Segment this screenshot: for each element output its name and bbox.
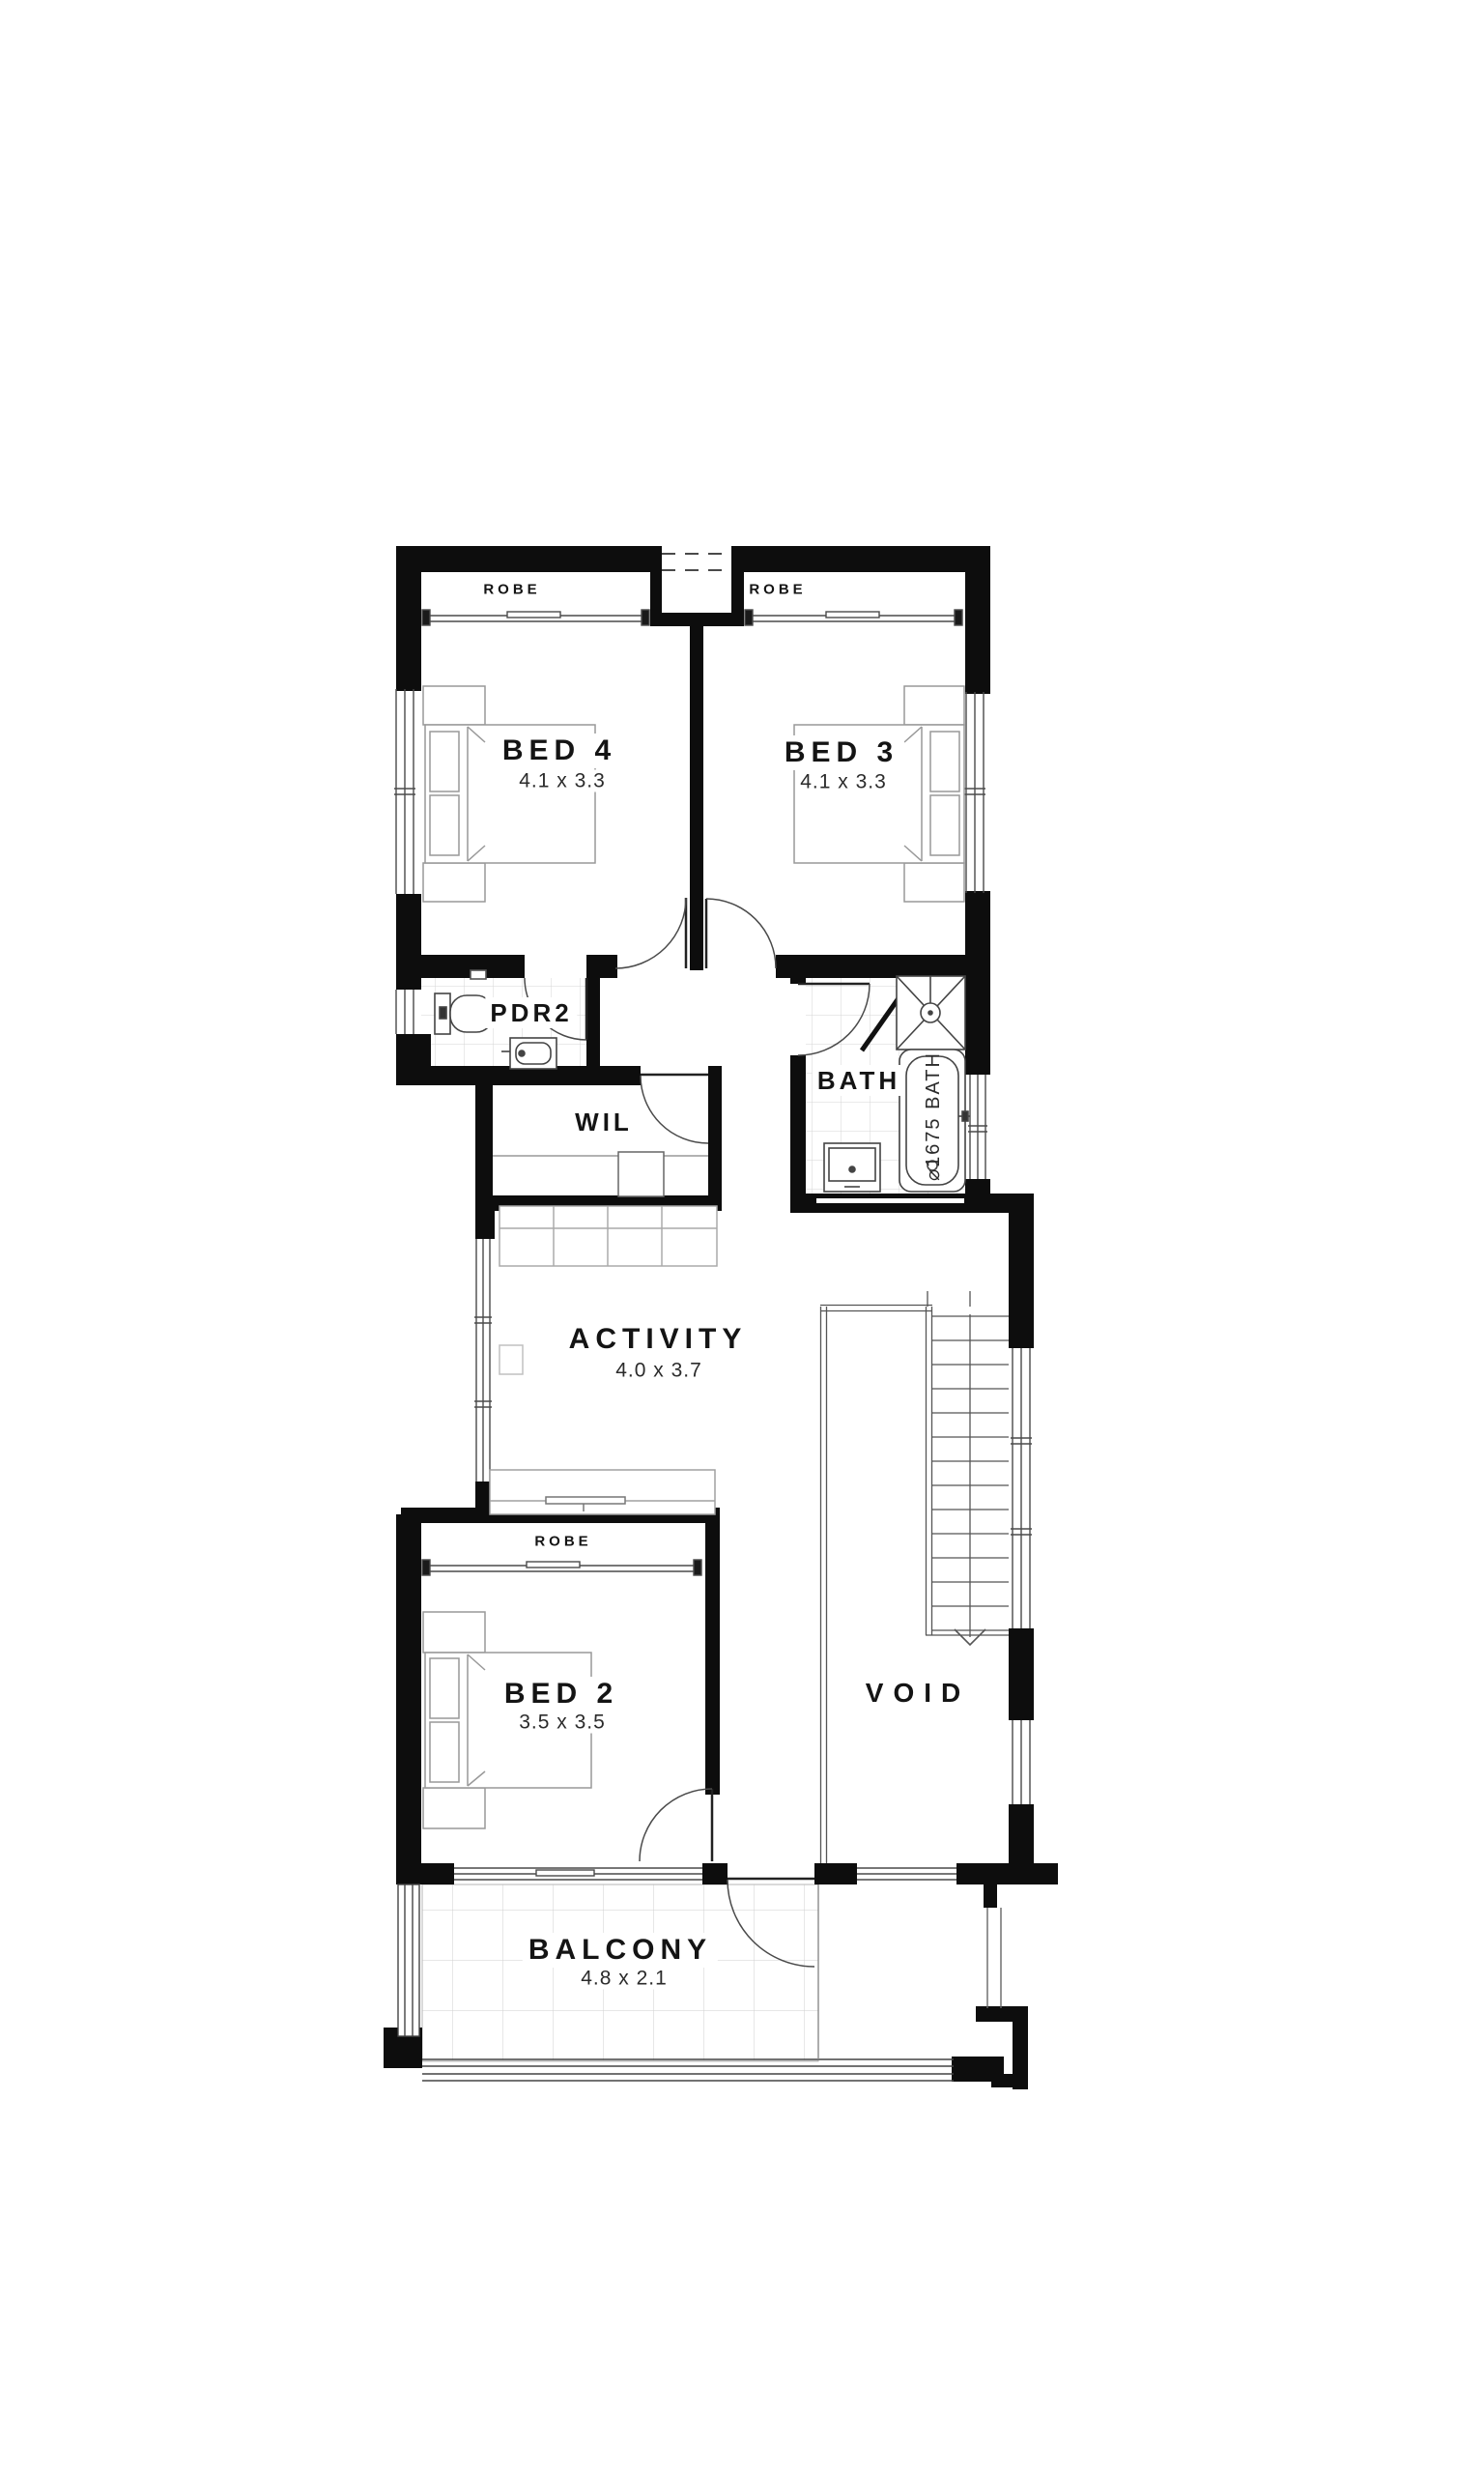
robe-label-bed3: ROBE [745, 581, 810, 599]
room-label-bed2: BED 2 [499, 1677, 624, 1712]
room-dims-activity: 4.0 x 3.7 [612, 1360, 706, 1382]
room-label-void: VOID [860, 1677, 976, 1710]
bed3-robe-slider [745, 610, 962, 625]
room-label-bed3: BED 3 [779, 735, 904, 770]
robe-label-bed4: ROBE [479, 581, 544, 599]
wall-bath-west [790, 1055, 806, 1194]
bed3-door [706, 899, 776, 968]
bed3-bed-icon [794, 686, 964, 902]
balcony-stacker-door [454, 1868, 702, 1880]
wall-stair-right-1 [1009, 1213, 1034, 1348]
wall-left-jog [396, 1034, 431, 1068]
vanity-icon [824, 1143, 880, 1192]
wall-right-upper [965, 546, 990, 694]
bed4-bed-icon [423, 686, 595, 902]
room-label-bath: BATH [813, 1065, 905, 1096]
wil-shelf [493, 1152, 708, 1196]
stair-treads [926, 1316, 1009, 1635]
room-label-activity: ACTIVITY [563, 1322, 754, 1357]
room-label-bed4: BED 4 [497, 734, 622, 768]
floor-plan-drawing [0, 0, 1484, 2474]
floor-plan-canvas: ROBE ROBE BED 4 4.1 x 3.3 BED 3 4.1 x 3.… [0, 0, 1484, 2474]
wall-return-foot [991, 2074, 1028, 2087]
bathtub-size-label: ⌀1675 BATH [924, 1051, 943, 1181]
wil-door [641, 1075, 708, 1143]
wall-stair-right-2 [1009, 1628, 1034, 1720]
stair-direction-arrow [955, 1314, 985, 1645]
wall-bed-divider [690, 626, 703, 970]
bed3-window [964, 692, 985, 893]
wall-bath-right-top [965, 976, 990, 1075]
wall-left-upper [396, 546, 421, 691]
activity-window [474, 1239, 492, 1482]
pdr2-window [396, 990, 414, 1034]
room-dims-bed2: 3.5 x 3.5 [515, 1712, 610, 1734]
bed4-robe-slider [422, 610, 649, 625]
wall-void-bottom-left [814, 1863, 857, 1884]
wall-stair-right-3 [1009, 1804, 1034, 1865]
bath-window [968, 1075, 987, 1179]
room-dims-balcony: 4.8 x 2.1 [577, 1968, 671, 1990]
void-slider-window [857, 1868, 956, 1880]
wall-right-stub [984, 1884, 997, 1908]
bed2-door [640, 1789, 712, 1861]
wall-top-left [396, 546, 650, 572]
room-label-wil: WIL [570, 1107, 638, 1137]
wall-bed2-bottom-left [396, 1863, 454, 1884]
balcony-rail-left [398, 1884, 419, 2036]
bed4-window [394, 689, 415, 894]
wall-hall-1 [396, 955, 525, 978]
wall-wil-left [475, 1085, 493, 1195]
sofa-icon [499, 1206, 717, 1266]
wall-balcony-post [702, 1863, 728, 1884]
activity-wall-niche [499, 1345, 523, 1374]
room-dims-bed4: 4.1 x 3.3 [515, 770, 610, 792]
bed2-robe-slider [422, 1560, 701, 1575]
wall-left-pdr2 [396, 978, 421, 990]
wall-hall-3 [776, 955, 990, 978]
wall-bath-bottom-groove [816, 1198, 964, 1203]
wall-activity-left-top [475, 1205, 495, 1239]
desk-icon [490, 1470, 715, 1514]
wall-void-bottom-right [956, 1863, 1058, 1884]
roof-dashed-lines [662, 554, 731, 570]
staircase [820, 1291, 1009, 1863]
wall-hall-2 [586, 955, 617, 978]
wall-bed2-left [396, 1514, 421, 1884]
balcony-balustrade-front [422, 2059, 954, 2081]
stair-window [1011, 1348, 1032, 1628]
wall-pdr2-right [586, 976, 600, 1069]
wall-return-lines [987, 1908, 1001, 2008]
wall-wil-right [708, 1066, 722, 1195]
room-label-pdr2: PDR2 [485, 997, 577, 1028]
void-window [1013, 1720, 1030, 1804]
room-dims-bed3: 4.1 x 3.3 [796, 771, 891, 793]
wall-top-right [744, 546, 990, 572]
shower-icon [897, 976, 965, 1050]
wall-niche-bottom [650, 613, 744, 626]
room-label-balcony: BALCONY [523, 1933, 718, 1968]
robe-label-bed2: ROBE [530, 1533, 595, 1551]
sink-icon [501, 1038, 556, 1069]
wall-bed2-right [705, 1514, 720, 1795]
bed4-door [615, 898, 686, 968]
wall-bath-right-bottom [965, 1179, 990, 1208]
wil-cabinet-icon [618, 1152, 664, 1196]
